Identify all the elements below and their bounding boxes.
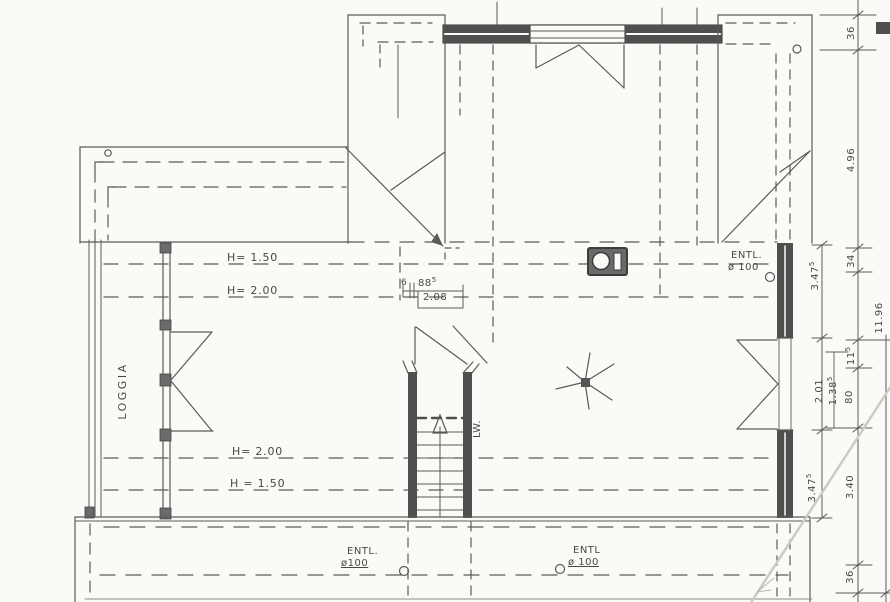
ceiling-light-icon xyxy=(556,353,614,409)
dim-main-2: 4.96 xyxy=(842,148,858,172)
vent-name: ENTL xyxy=(573,545,600,557)
top-wall xyxy=(443,2,722,88)
vent-size: ø 100 xyxy=(728,262,762,274)
vent-name: ENTL. xyxy=(731,250,762,262)
vent-circle-icon xyxy=(556,565,565,574)
dim-main-3: 34 xyxy=(842,254,858,268)
dim-main-5: 80 xyxy=(840,390,856,404)
dim-main-6: 3.40 xyxy=(841,475,857,499)
paper-crease xyxy=(750,383,890,602)
vent-circle-icon xyxy=(766,273,775,282)
right-wall xyxy=(737,243,793,518)
window-swing-icon xyxy=(737,340,778,429)
bottom-terrace xyxy=(75,517,812,602)
loggia-area xyxy=(85,240,213,519)
dimension-chains xyxy=(812,0,890,602)
height-line-label-h150-bottom: H = 1.50 xyxy=(230,478,285,490)
height-line-label-h200-bottom: H= 2.00 xyxy=(232,446,283,458)
dim-inner-1: 3.475 xyxy=(806,262,822,291)
left-dormer xyxy=(348,15,445,243)
right-dormer xyxy=(718,15,890,243)
top-window xyxy=(530,25,625,43)
window-swing-icon xyxy=(536,45,624,88)
roof-valley-line xyxy=(391,152,445,190)
staircase xyxy=(403,326,487,597)
dim-stair-a: 6 xyxy=(401,277,407,289)
dim-stair-total: 2.08 xyxy=(423,292,447,304)
room-label-stair-lw: LW. xyxy=(472,420,484,438)
dim-inner-4: 3.475 xyxy=(803,474,819,503)
height-line-label-h200-top: H= 2.00 xyxy=(227,285,278,297)
window-swing-icon xyxy=(170,332,213,431)
dim-total: 11.96 xyxy=(874,302,886,333)
chimney-icon xyxy=(588,248,627,275)
roof-window-swing-icon xyxy=(722,151,810,242)
vent-label-bottom-right: ENTL ø 100 xyxy=(573,545,600,569)
roof-hip-line xyxy=(346,148,443,246)
dim-main-4: 115 xyxy=(842,347,858,365)
dim-main-7: 36 xyxy=(841,570,857,584)
room-label-loggia: LOGGIA xyxy=(117,362,129,419)
vent-size: ø100 xyxy=(341,558,378,570)
vent-circle-icon xyxy=(400,567,409,576)
vent-size: ø 100 xyxy=(568,557,600,569)
vent-name: ENTL. xyxy=(347,546,378,558)
floor-plan-page: H= 1.50 H= 2.00 H= 2.00 H = 1.50 LOGGIA … xyxy=(0,0,890,602)
dim-stair-b: 885 xyxy=(418,274,436,290)
vent-label-bottom-left: ENTL. ø100 xyxy=(347,546,378,570)
dim-inner-3: 1.385 xyxy=(824,377,840,406)
height-line-label-h150-top: H= 1.50 xyxy=(227,252,278,264)
dim-main-1: 36 xyxy=(842,26,858,40)
vent-label-top-right: ENTL. ø 100 xyxy=(731,250,762,274)
